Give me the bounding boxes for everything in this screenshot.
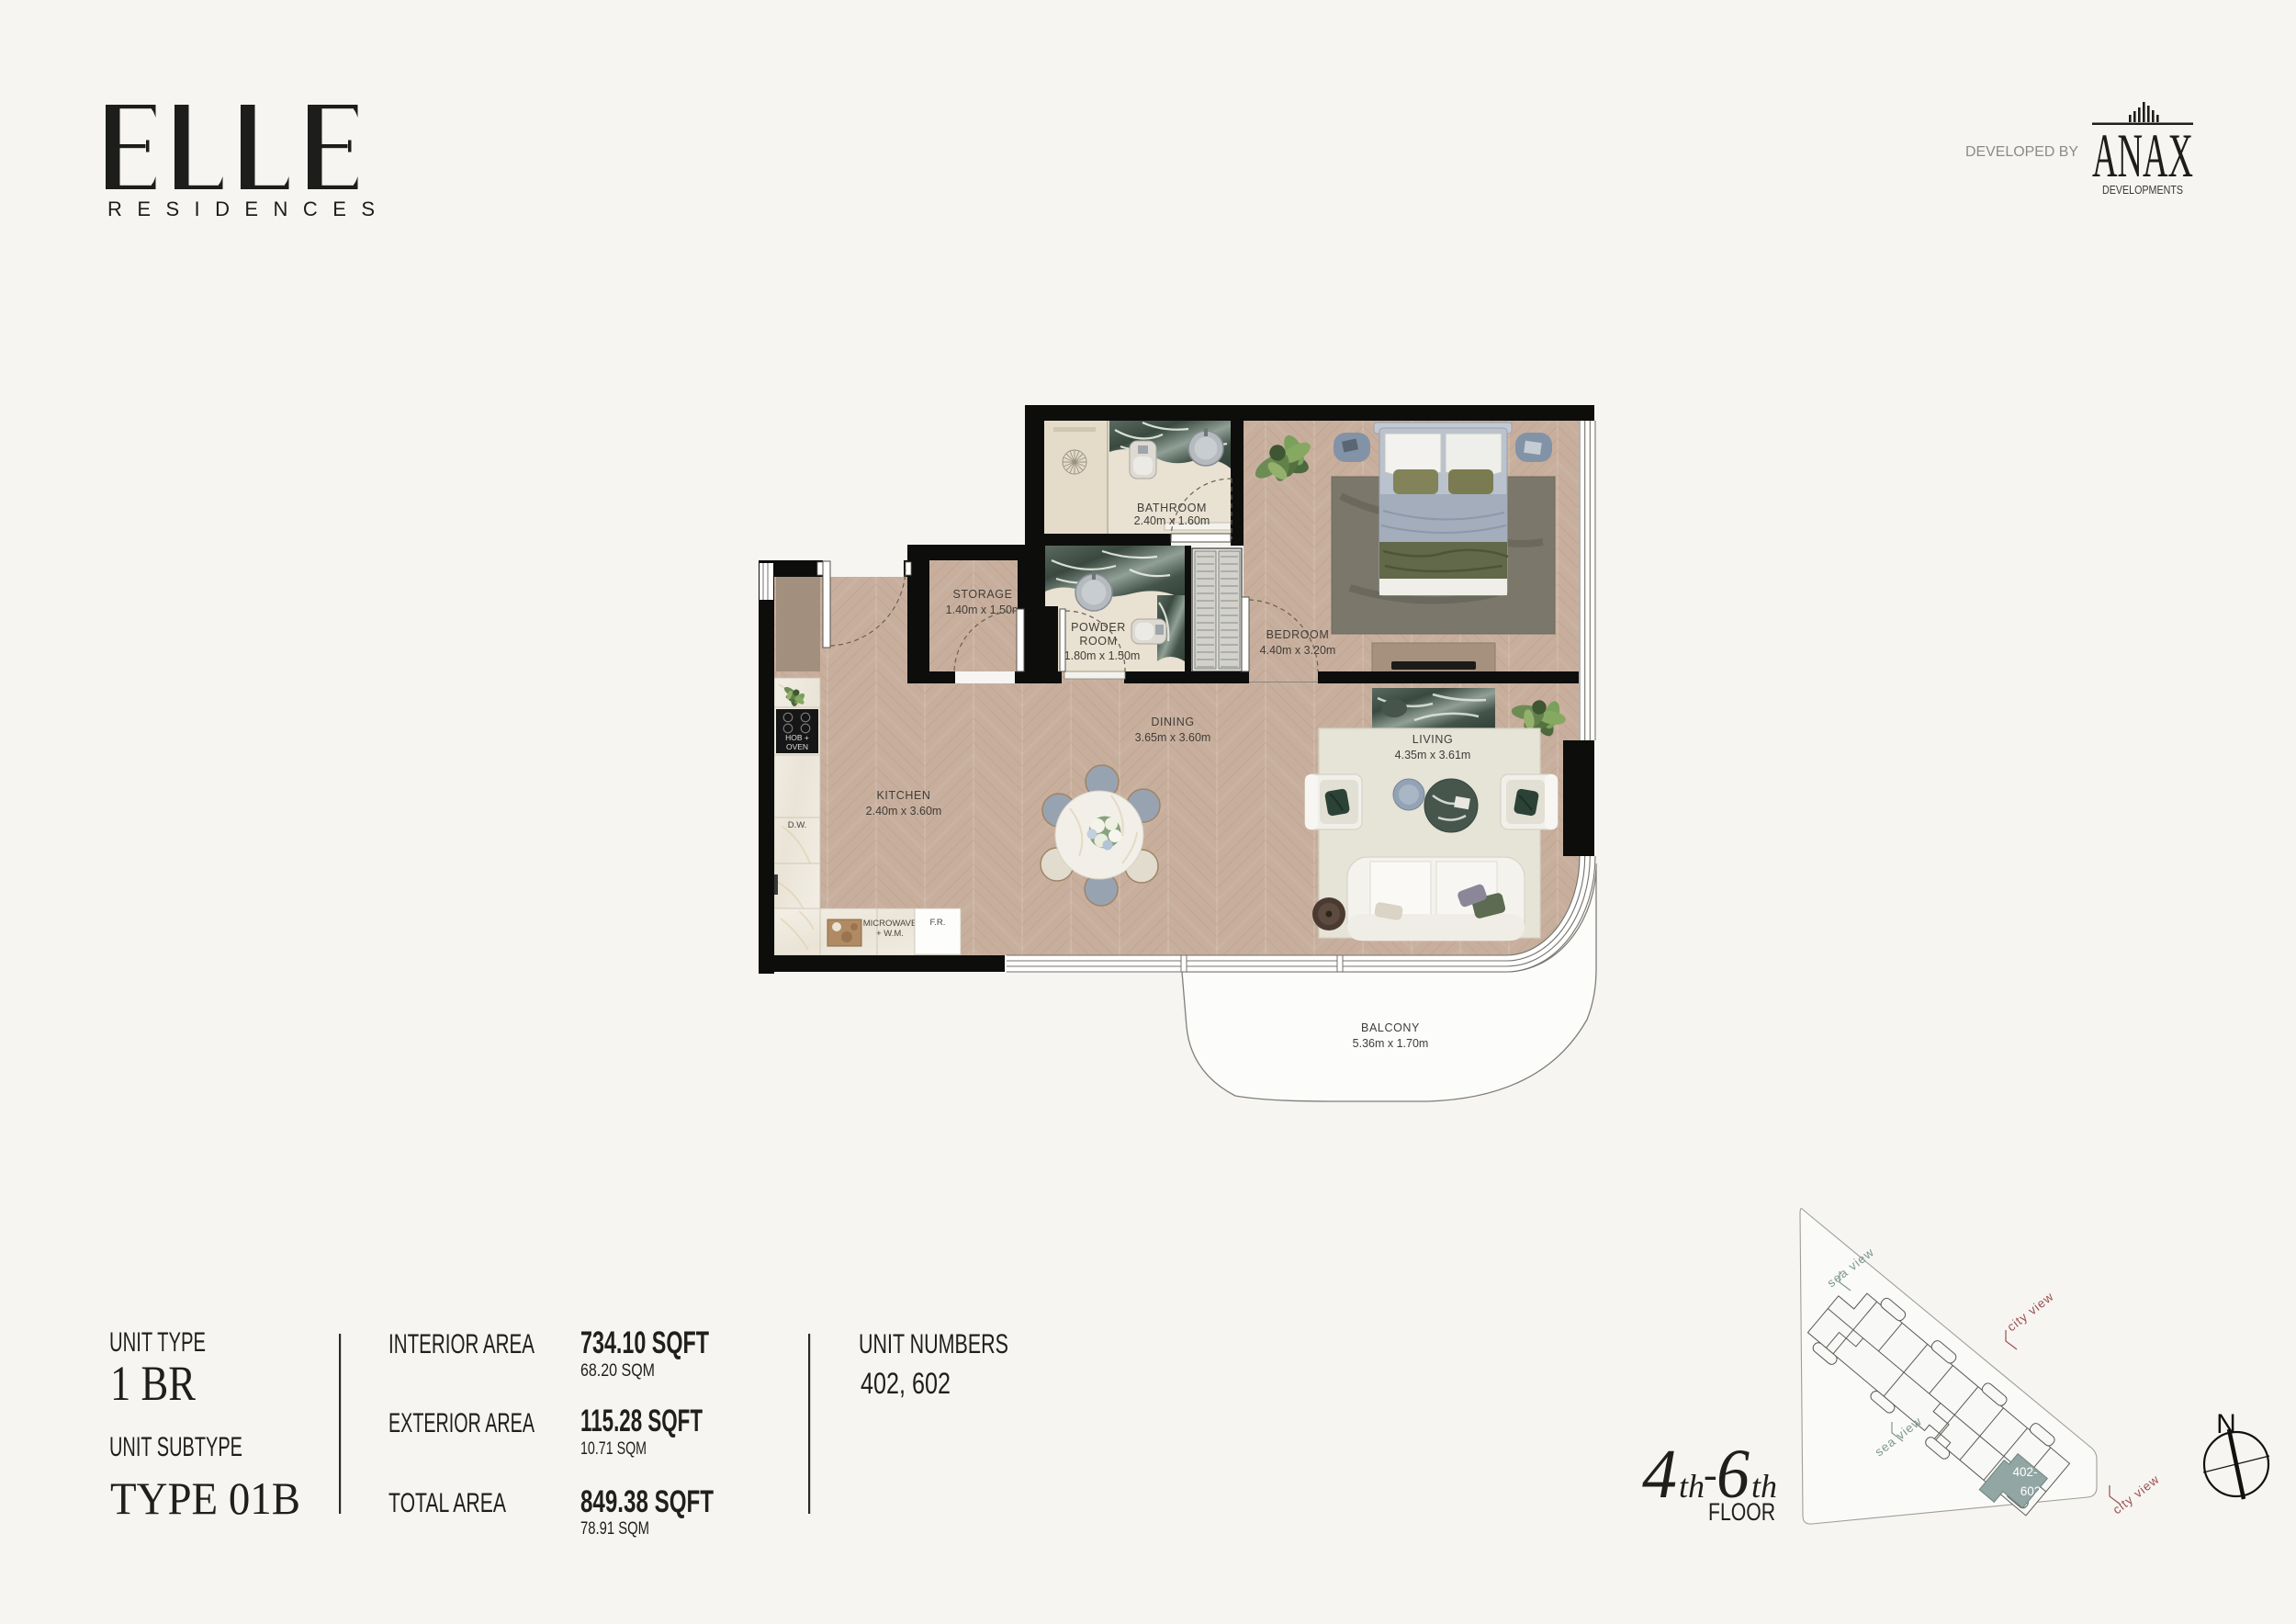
svg-text:EXTERIOR AREA: EXTERIOR AREA	[388, 1408, 535, 1438]
svg-text:402-: 402-	[2012, 1465, 2037, 1479]
svg-text:115.28 SQFT: 115.28 SQFT	[580, 1404, 703, 1438]
svg-text:2.40m x 3.60m: 2.40m x 3.60m	[866, 805, 942, 818]
svg-text:STORAGE: STORAGE	[952, 588, 1012, 601]
svg-text:+ W.M.: + W.M.	[876, 929, 904, 939]
svg-text:4: 4	[1642, 1436, 1677, 1513]
svg-text:UNIT TYPE: UNIT TYPE	[109, 1327, 206, 1358]
svg-text:4.40m x 3.20m: 4.40m x 3.20m	[1260, 644, 1336, 657]
svg-text:402, 602: 402, 602	[861, 1367, 951, 1400]
svg-text:734.10 SQFT: 734.10 SQFT	[580, 1325, 709, 1360]
svg-text:N: N	[2216, 1409, 2236, 1439]
svg-text:DEVELOPED BY: DEVELOPED BY	[1965, 144, 2078, 160]
svg-text:INTERIOR AREA: INTERIOR AREA	[388, 1329, 535, 1359]
svg-text:1.40m x 1.50m: 1.40m x 1.50m	[946, 603, 1022, 616]
svg-text:BATHROOM: BATHROOM	[1137, 502, 1207, 514]
svg-text:849.38 SQFT: 849.38 SQFT	[580, 1484, 714, 1519]
svg-text:10.71 SQM: 10.71 SQM	[580, 1439, 647, 1459]
svg-text:POWDER: POWDER	[1071, 621, 1126, 634]
svg-text:BEDROOM: BEDROOM	[1266, 628, 1330, 641]
svg-text:2.40m x 1.60m: 2.40m x 1.60m	[1134, 514, 1210, 527]
svg-text:68.20 SQM: 68.20 SQM	[580, 1361, 655, 1381]
svg-text:1.80m x 1.50m: 1.80m x 1.50m	[1064, 649, 1141, 662]
svg-text:ROOM: ROOM	[1079, 635, 1117, 648]
svg-text:KITCHEN: KITCHEN	[876, 789, 930, 802]
svg-text:DEVELOPMENTS: DEVELOPMENTS	[2102, 184, 2183, 197]
svg-text:FLOOR: FLOOR	[1708, 1498, 1775, 1526]
svg-text:5.36m x 1.70m: 5.36m x 1.70m	[1353, 1037, 1429, 1050]
svg-text:UNIT NUMBERS: UNIT NUMBERS	[859, 1329, 1008, 1359]
svg-text:4.35m x 3.61m: 4.35m x 3.61m	[1395, 749, 1471, 761]
svg-text:OVEN: OVEN	[786, 742, 808, 751]
svg-text:78.91 SQM: 78.91 SQM	[580, 1519, 649, 1539]
svg-text:HOB +: HOB +	[785, 733, 809, 742]
svg-text:1 BR: 1 BR	[110, 1356, 196, 1411]
svg-text:TOTAL AREA: TOTAL AREA	[388, 1488, 506, 1518]
svg-text:MICROWAVE: MICROWAVE	[863, 919, 917, 929]
svg-text:D.W.: D.W.	[788, 820, 807, 830]
svg-text:F.R.: F.R.	[930, 918, 946, 928]
svg-text:UNIT SUBTYPE: UNIT SUBTYPE	[109, 1432, 242, 1462]
svg-text:ANAX: ANAX	[2092, 120, 2193, 190]
svg-text:BALCONY: BALCONY	[1361, 1021, 1420, 1034]
svg-text:602: 602	[2020, 1484, 2042, 1498]
svg-text:3.65m x 3.60m: 3.65m x 3.60m	[1135, 731, 1211, 744]
svg-text:th: th	[1679, 1468, 1705, 1505]
svg-text:LIVING: LIVING	[1412, 733, 1454, 746]
svg-text:DINING: DINING	[1151, 716, 1194, 728]
svg-text:RESIDENCES: RESIDENCES	[107, 197, 383, 220]
svg-text:TYPE 01B: TYPE 01B	[110, 1472, 300, 1524]
svg-text:-: -	[1704, 1452, 1717, 1497]
